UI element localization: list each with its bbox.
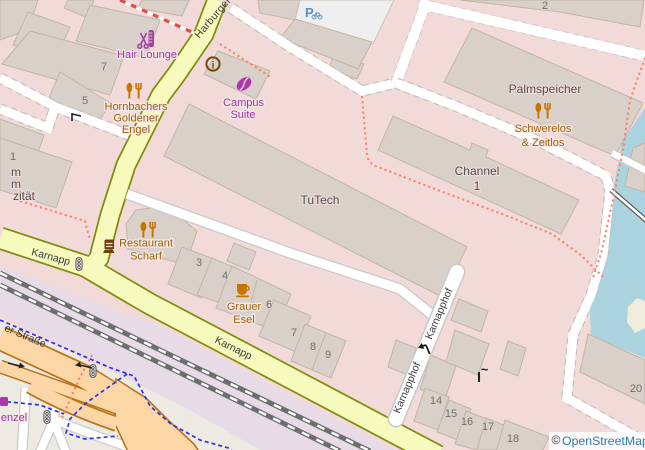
svg-text:P: P <box>305 5 314 20</box>
svg-text:Schwerelos: Schwerelos <box>515 123 572 135</box>
svg-text:15: 15 <box>445 408 457 420</box>
svg-text:5: 5 <box>82 95 88 107</box>
svg-text:16: 16 <box>461 416 473 428</box>
svg-text:©: © <box>552 433 561 447</box>
svg-text:Suite: Suite <box>230 109 255 121</box>
svg-text:7: 7 <box>101 61 107 73</box>
svg-text:zität: zität <box>13 189 36 203</box>
svg-text:1: 1 <box>10 151 16 163</box>
svg-text:3: 3 <box>196 257 202 269</box>
svg-text:8: 8 <box>310 341 316 353</box>
svg-text:18: 18 <box>507 433 519 445</box>
svg-text:1: 1 <box>474 179 481 193</box>
svg-text:Campus: Campus <box>223 97 264 109</box>
svg-text:6: 6 <box>266 299 272 311</box>
svg-text:Esel: Esel <box>233 314 254 326</box>
svg-text:7: 7 <box>291 327 297 339</box>
svg-text:& Zeitlos: & Zeitlos <box>522 137 565 149</box>
svg-text:Goldener: Goldener <box>113 113 159 125</box>
svg-text:Engel: Engel <box>122 124 150 136</box>
svg-text:~: ~ <box>481 362 489 377</box>
svg-text:20: 20 <box>630 383 642 395</box>
svg-text:TuTech: TuTech <box>301 193 340 207</box>
svg-text:14: 14 <box>430 395 442 407</box>
svg-text:i: i <box>212 61 215 72</box>
svg-text:17: 17 <box>482 421 494 433</box>
svg-text:9: 9 <box>325 349 331 361</box>
svg-text:OpenStreetMap-: OpenStreetMap- <box>562 434 645 448</box>
svg-text:Palmspeicher: Palmspeicher <box>509 82 582 96</box>
svg-text:Scharf: Scharf <box>130 251 163 263</box>
svg-text:Grauer: Grauer <box>227 301 262 313</box>
svg-text:Restaurant: Restaurant <box>119 238 173 250</box>
svg-text:enzel: enzel <box>1 412 27 424</box>
svg-text:4: 4 <box>222 270 228 282</box>
svg-text:Channel: Channel <box>455 164 500 178</box>
svg-text:Hair Lounge: Hair Lounge <box>117 49 177 61</box>
svg-text:Hornbachers: Hornbachers <box>105 101 168 113</box>
svg-text:2: 2 <box>542 0 548 12</box>
